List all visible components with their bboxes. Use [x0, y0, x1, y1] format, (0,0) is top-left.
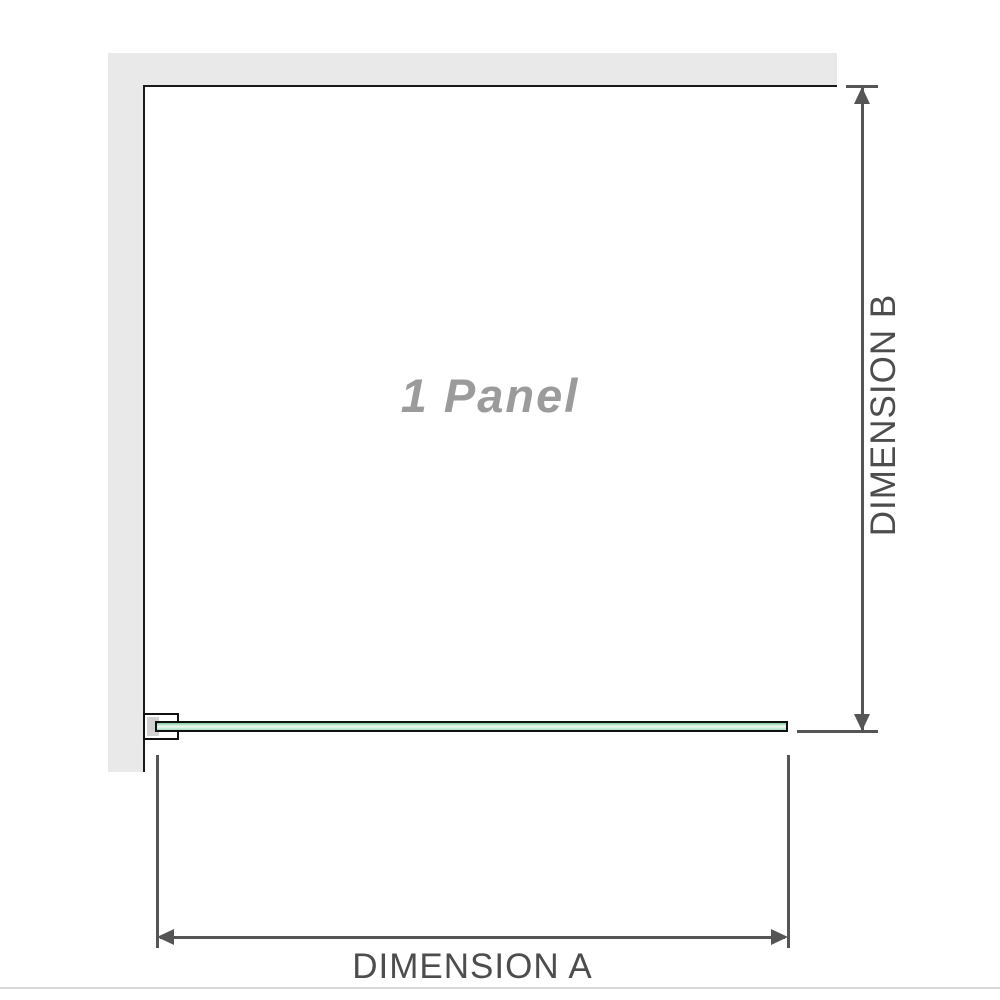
dimension-a-extension-right [787, 755, 790, 948]
wall-left-strip [108, 53, 143, 772]
glass-panel-bar [155, 721, 788, 732]
panel-outline-left [143, 85, 145, 772]
arrowhead-up-icon [854, 87, 870, 104]
dimension-a-line [160, 936, 785, 939]
bottom-divider [0, 987, 1000, 989]
dimension-a-extension-left [156, 755, 159, 948]
arrowhead-right-icon [771, 929, 788, 945]
dimension-a-label: DIMENSION A [157, 947, 788, 987]
panel-outline-top [143, 85, 837, 87]
dimension-b-label: DIMENSION B [866, 265, 902, 565]
wall-top-strip [108, 53, 837, 87]
arrowhead-left-icon [157, 929, 174, 945]
panel-diagram: 1 Panel DIMENSION B DIMENSION A [0, 0, 1000, 1000]
panel-count-label: 1 Panel [143, 368, 837, 423]
arrowhead-down-icon [854, 714, 870, 731]
